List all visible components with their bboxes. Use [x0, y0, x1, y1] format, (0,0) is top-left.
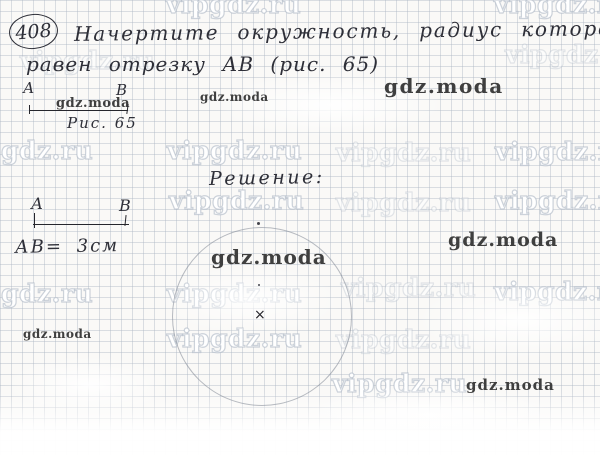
brand-watermark: gdz.moda: [200, 90, 269, 104]
segment-tick-a: [34, 213, 35, 228]
brand-watermark: gdz.moda: [466, 376, 555, 394]
solution-heading: Решение:: [209, 166, 325, 190]
point-b-label: В: [116, 81, 127, 99]
segment-line: [29, 110, 128, 111]
point-a-label: А: [31, 194, 43, 213]
figure-caption: Рис. 65: [67, 114, 138, 132]
segment-line: [33, 224, 129, 225]
problem-text-line2: равен отрезку АВ (рис. 65): [26, 52, 379, 76]
point-b-label: В: [119, 196, 131, 215]
segment-tick-a: [29, 105, 30, 114]
segment-length-note: АВ= 3см: [15, 235, 119, 258]
brand-watermark: gdz.moda: [384, 74, 504, 98]
pen-dot: [258, 284, 260, 286]
notebook-page: vipgdz.ru vipgdz.ru vipgdz.ru vipgdz.ru …: [0, 0, 600, 455]
circle-center-mark: ×: [254, 307, 266, 323]
point-a-label: А: [23, 79, 34, 97]
brand-watermark: gdz.moda: [23, 327, 92, 341]
task-number: 408: [14, 19, 52, 44]
brand-watermark: gdz.moda: [448, 229, 558, 251]
pen-dot: [257, 222, 260, 225]
